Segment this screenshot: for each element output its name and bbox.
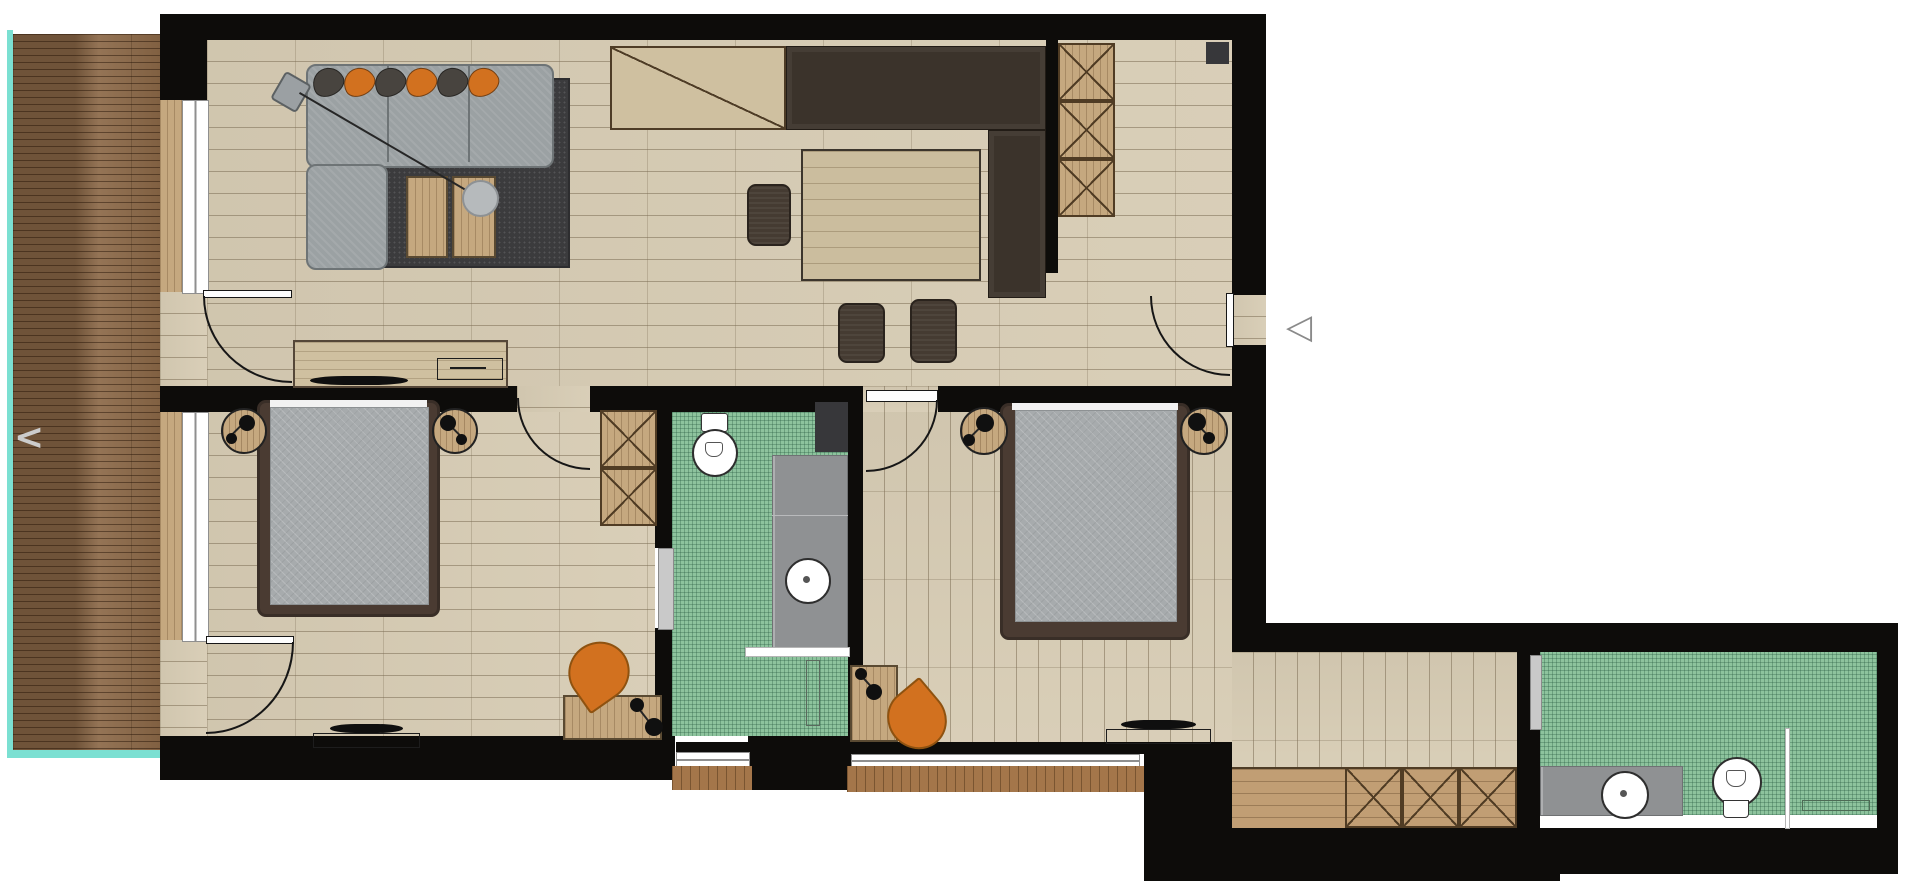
bedroom-1-wardrobe-door-1 — [600, 410, 657, 468]
bathroom-1-shower-screen — [745, 647, 850, 657]
bed-1-lamp-right-small — [456, 434, 467, 445]
bathroom-1-vanity-seam — [772, 515, 848, 516]
sofa-chaise — [306, 164, 388, 270]
kitchen-counter-top — [786, 46, 1046, 130]
bathroom-2-sliding-door — [1530, 655, 1542, 730]
entry-door-opening — [1232, 295, 1266, 345]
balcony-deck — [13, 34, 161, 755]
floor-lamp-shade — [462, 180, 499, 217]
dining-table — [801, 149, 981, 281]
bathroom-1-sliding-door — [658, 548, 674, 630]
bedroom-2-desk-lamp-big — [866, 684, 882, 700]
bedroom-1-desk-lamp-big — [645, 718, 663, 736]
toilet-2-seat — [1726, 770, 1746, 787]
kitchen-cabinet — [610, 46, 786, 130]
bed-2-lamp-left — [976, 414, 994, 432]
floor-plan-viewer: < ◁ — [0, 0, 1908, 881]
closet-door-2 — [1402, 767, 1459, 828]
sideboard-drawer — [437, 358, 503, 380]
bathroom-2-curb — [1540, 815, 1877, 827]
bed-2-mattress — [1015, 410, 1177, 622]
bedroom-1-wardrobe-door-2 — [600, 468, 657, 526]
wall-top-left-block — [160, 14, 207, 100]
shaft-top-right — [1206, 42, 1229, 64]
window-jamb-living — [160, 100, 182, 292]
bedroom-2-desk-lamp — [855, 668, 867, 680]
wall-bedroom-2-south — [847, 742, 1144, 754]
bed-2-lamp-left-small — [963, 434, 975, 446]
tv-living — [310, 376, 408, 385]
kitchen-counter-leg — [988, 130, 1046, 298]
coffee-table-plank-1 — [406, 176, 448, 258]
tv-bedroom-1 — [330, 724, 403, 733]
dining-stool-3 — [910, 299, 957, 363]
bedroom-2-tv-table — [1106, 729, 1211, 744]
wall-under-bath-1 — [748, 736, 852, 790]
bed-2-headboard — [1012, 403, 1178, 410]
dining-stool-2 — [838, 303, 885, 363]
wall-kitchen-stub — [1046, 40, 1058, 273]
toilet-1-seat — [705, 442, 723, 457]
living-balcony-door-opening — [160, 292, 207, 388]
bed-2-lamp-right-small — [1203, 432, 1215, 444]
bathroom-1-shower-drain — [806, 660, 820, 726]
bed-1-headboard — [270, 400, 427, 407]
bathroom-2-faucet — [1620, 790, 1627, 797]
tv-bedroom-2 — [1121, 720, 1196, 729]
bedroom-1-tv-table — [313, 733, 420, 748]
closet-door-1 — [1345, 767, 1402, 828]
living-wardrobe-door-2 — [1058, 101, 1115, 159]
bedroom-1-desk-lamp — [630, 698, 644, 712]
wall-top — [160, 14, 1266, 40]
entry-direction-icon: ◁ — [1286, 310, 1312, 344]
wall-right-mid — [1232, 345, 1266, 623]
bathroom-1-faucet — [803, 576, 810, 583]
living-window — [182, 100, 209, 294]
bathroom-2-shower-screen — [1785, 728, 1790, 829]
dining-stool-1 — [747, 184, 791, 246]
bedroom-2-window-sill — [847, 766, 1144, 792]
bathroom-1-shaft — [815, 402, 848, 452]
bathroom-1-vanity — [772, 455, 848, 652]
living-wardrobe-door-1 — [1058, 43, 1115, 101]
bed-2-lamp-right — [1188, 413, 1206, 431]
wall-bathroom-1-left-a — [655, 412, 672, 548]
bed-1-lamp-left-small — [226, 433, 237, 444]
carousel-prev-icon[interactable]: < — [14, 420, 44, 456]
sideboard-handle — [450, 367, 486, 369]
bathroom-1-window-sill — [672, 766, 752, 790]
bedroom-1-balcony-door-opening — [160, 640, 207, 738]
hallway-floor — [1232, 652, 1517, 767]
living-wardrobe-door-3 — [1058, 159, 1115, 217]
wall-right-top — [1232, 14, 1266, 295]
wall-bath-1-window-jamb — [676, 742, 748, 752]
wall-bottom-hallway — [1232, 828, 1560, 881]
bathroom-2-towel-rail — [1802, 800, 1870, 811]
window-jamb-bedroom-1 — [160, 412, 182, 640]
balcony-edge-bottom — [7, 750, 165, 758]
bed-1-lamp-right — [440, 415, 456, 431]
wall-corner-southeast-bedroom-2 — [1144, 742, 1232, 881]
bed-1-lamp-left — [239, 415, 255, 431]
toilet-2-tank — [1723, 800, 1749, 818]
closet-door-3 — [1459, 767, 1517, 828]
bedroom-1-window — [182, 412, 209, 642]
bed-1-mattress — [270, 407, 429, 605]
wall-hallway-top — [1232, 623, 1898, 652]
